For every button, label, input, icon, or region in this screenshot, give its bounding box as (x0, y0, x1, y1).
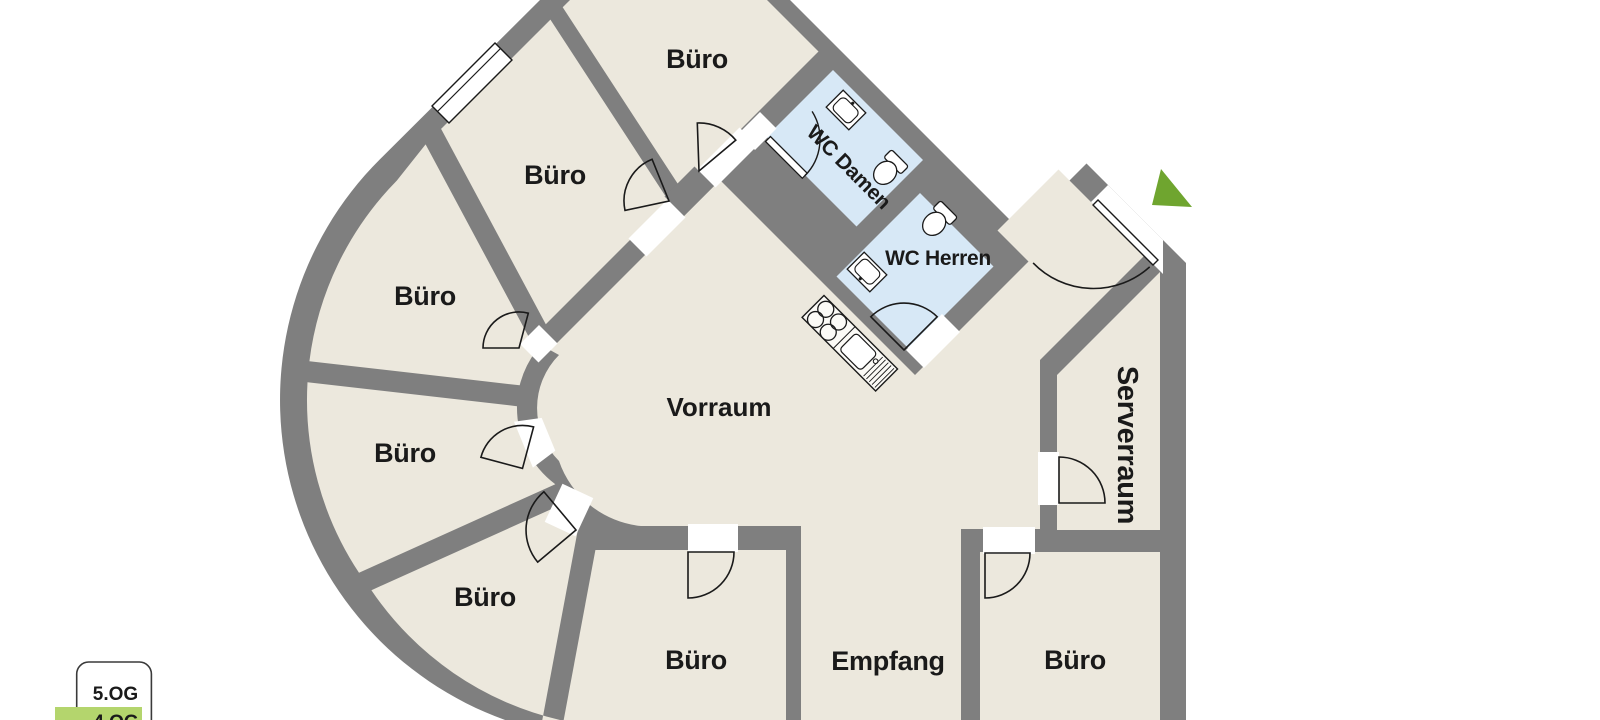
svg-text:4.OG: 4.OG (93, 712, 138, 720)
svg-text:Büro: Büro (374, 438, 436, 468)
svg-text:Büro: Büro (1044, 645, 1106, 675)
svg-text:Vorraum: Vorraum (667, 392, 772, 422)
svg-text:Serverraum: Serverraum (1111, 366, 1143, 524)
svg-text:Büro: Büro (665, 645, 727, 675)
svg-text:Büro: Büro (394, 281, 456, 311)
svg-text:WC Herren: WC Herren (885, 247, 991, 270)
svg-text:Büro: Büro (666, 44, 728, 74)
svg-text:Büro: Büro (524, 160, 586, 190)
svg-text:Büro: Büro (454, 582, 516, 612)
svg-text:5.OG: 5.OG (93, 684, 138, 705)
svg-text:Empfang: Empfang (831, 646, 944, 676)
